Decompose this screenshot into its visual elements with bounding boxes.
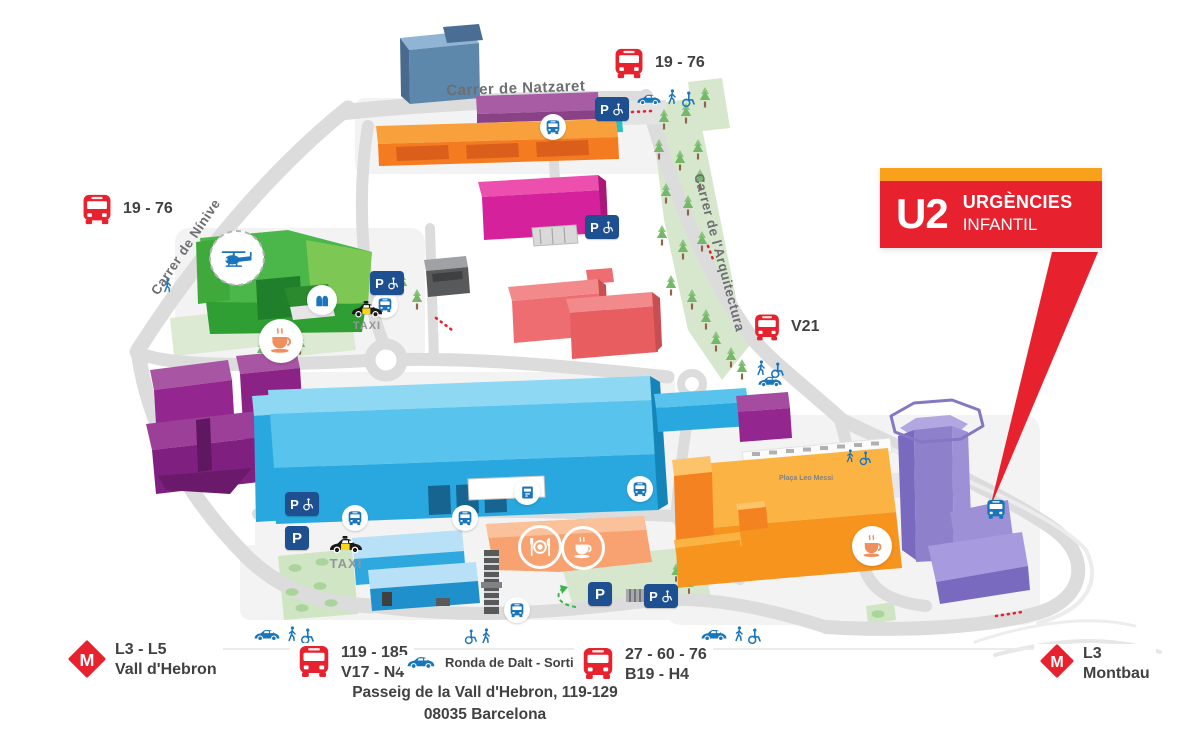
accessible-parking-sign: P: [595, 97, 629, 121]
parking-sign: P: [285, 526, 309, 550]
bus-routes-east: V21: [791, 318, 819, 336]
stairs-main: [481, 550, 502, 614]
legend-bus-right: 27 - 60 - 76B19 - H4: [574, 645, 713, 685]
parking-sign: P: [588, 582, 612, 606]
bus-routes-north: 19 - 76: [655, 54, 705, 72]
address-line1: Passeig de la Vall d'Hebron, 119-129: [290, 682, 680, 704]
bus-stop-icon: [540, 114, 566, 140]
bus-stop-north: 19 - 76: [612, 46, 705, 80]
building-gray: [424, 256, 470, 297]
building-lightblue-south: [352, 530, 480, 611]
building-orange-north: [376, 119, 619, 166]
building-yellow-east: [672, 448, 902, 588]
wheelchair-icon: [462, 629, 478, 645]
wheelchair-icon: [857, 451, 872, 466]
pedestrian-icon: [753, 360, 769, 376]
bus-routes-west: 19 - 76: [123, 200, 173, 218]
bus-routes-row1: 27 - 60 - 76: [625, 645, 707, 665]
stairs-small: [626, 589, 644, 602]
restaurant-icon: [518, 525, 562, 569]
parking-letter: P: [595, 586, 605, 603]
wheelchair-icon: [745, 628, 762, 645]
accessible-parking-sign: P: [370, 271, 404, 295]
parking-letter: P: [600, 102, 609, 117]
atm-icon: [514, 479, 540, 505]
bus-stop-west: 19 - 76: [80, 192, 173, 226]
accessible-parking-sign: P: [585, 215, 619, 239]
taxi-label: TAXI: [353, 320, 381, 332]
address: Passeig de la Vall d'Hebron, 119-129 080…: [290, 682, 680, 727]
metro-station: Vall d'Hebron: [115, 660, 217, 680]
wheelchair-icon: [679, 91, 696, 108]
bus-stop-icon: [627, 476, 653, 502]
bus-icon: [80, 192, 114, 226]
bus-routes-row2: V17 - N4: [341, 663, 408, 683]
taxi-label: TAXI: [330, 556, 363, 571]
bus-icon: [752, 312, 782, 342]
taxi-icon: [328, 535, 364, 555]
pedestrian-icon: [160, 278, 175, 293]
metro-logo-icon: M: [68, 640, 106, 678]
chapel-icon: [307, 285, 337, 315]
bus-stop-icon: [452, 505, 478, 531]
car-icon: [636, 93, 662, 106]
bus-stop-icon: [342, 505, 368, 531]
car-icon: [406, 655, 436, 670]
pedestrian-icon: [664, 89, 680, 105]
accessible-parking-sign: P: [644, 584, 678, 608]
metro-logo-icon: M: [1040, 644, 1074, 678]
bus-stop-icon: [504, 597, 530, 623]
metro-lines: L3 - L5: [115, 640, 217, 660]
bus-routes-row1: 119 - 185: [341, 643, 408, 663]
bus-stop-icon: [985, 498, 1007, 520]
cafe-icon: [852, 526, 892, 566]
taxi-stand: TAXI: [328, 535, 364, 571]
metro-m-letter: M: [80, 650, 95, 670]
bus-icon: [296, 643, 332, 679]
car-icon: [253, 628, 281, 642]
taxi-icon: [350, 300, 384, 319]
cafe-icon: [561, 526, 605, 570]
accessible-parking-sign: P: [285, 492, 319, 516]
metro-station: Montbau: [1083, 664, 1150, 684]
hospital-campus-map: Carrer de Natzaret Carrer de Nínive Carr…: [0, 0, 1200, 750]
parking-letter: P: [292, 530, 302, 547]
bus-stop-east: V21: [752, 312, 819, 342]
car-icon: [757, 375, 783, 388]
taxi-stand: TAXI: [350, 300, 384, 332]
parking-letter: P: [290, 497, 299, 512]
legend-bus-left: 119 - 185V17 - N4: [290, 643, 414, 683]
callout-subtitle: INFANTIL: [963, 215, 1073, 235]
callout-accent-stripe: [880, 168, 1102, 181]
pedestrian-icon: [478, 628, 494, 644]
legend-metro-vall-hebron: M L3 - L5Vall d'Hebron: [62, 640, 223, 680]
cafe-icon: [259, 319, 303, 363]
urgencies-callout: U2 URGÈNCIES INFANTIL: [880, 168, 1102, 248]
parking-letter: P: [649, 589, 658, 604]
placa-leo-messi-label: Plaça Leo Messi: [779, 475, 833, 482]
building-coral: [508, 268, 662, 359]
legend-metro-montbau: M L3Montbau: [1034, 644, 1156, 684]
parking-letter: P: [590, 220, 599, 235]
bus-icon: [580, 645, 616, 681]
metro-m-letter: M: [1050, 653, 1063, 671]
callout-code: U2: [896, 193, 948, 235]
metro-lines: L3: [1083, 644, 1150, 664]
pedestrian-icon: [843, 449, 857, 463]
car-icon: [700, 628, 728, 642]
bus-icon: [612, 46, 646, 80]
address-line2: 08035 Barcelona: [290, 704, 680, 726]
parking-letter: P: [375, 276, 384, 291]
callout-title: URGÈNCIES: [963, 192, 1073, 213]
